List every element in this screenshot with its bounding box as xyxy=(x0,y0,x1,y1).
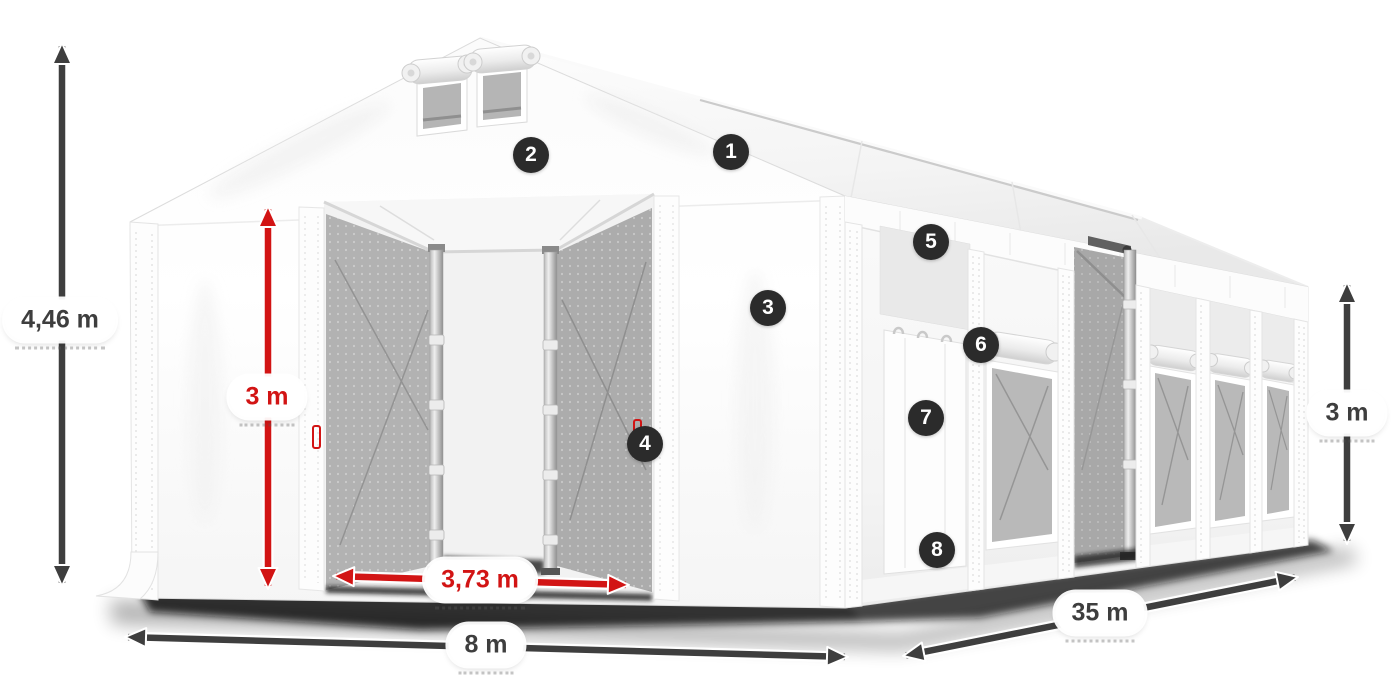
callout-badge-3: 3 xyxy=(750,290,786,326)
dimension-label-length: 35 m xyxy=(1056,593,1145,634)
dimension-label-total-height: 4,46 m xyxy=(5,300,115,341)
callout-badge-8: 8 xyxy=(919,532,955,568)
dimension-label-entrance-width: 3,73 m xyxy=(425,560,535,601)
callout-badge-1: 1 xyxy=(713,134,749,170)
callout-badge-5: 5 xyxy=(913,224,949,260)
callout-badge-4: 4 xyxy=(627,426,663,462)
dimension-arrows xyxy=(0,0,1400,700)
dimension-label-side-height: 3 m xyxy=(1309,393,1384,434)
callout-badge-2: 2 xyxy=(513,137,549,173)
dimension-label-entrance-height: 3 m xyxy=(229,377,304,418)
callout-badge-7: 7 xyxy=(908,400,944,436)
tent-product-diagram: 4,46 m 3 m 3,73 m 8 m 35 m 3 m 1 2 3 4 5… xyxy=(0,0,1400,700)
callout-badge-6: 6 xyxy=(963,327,999,363)
dimension-label-width: 8 m xyxy=(448,625,523,666)
